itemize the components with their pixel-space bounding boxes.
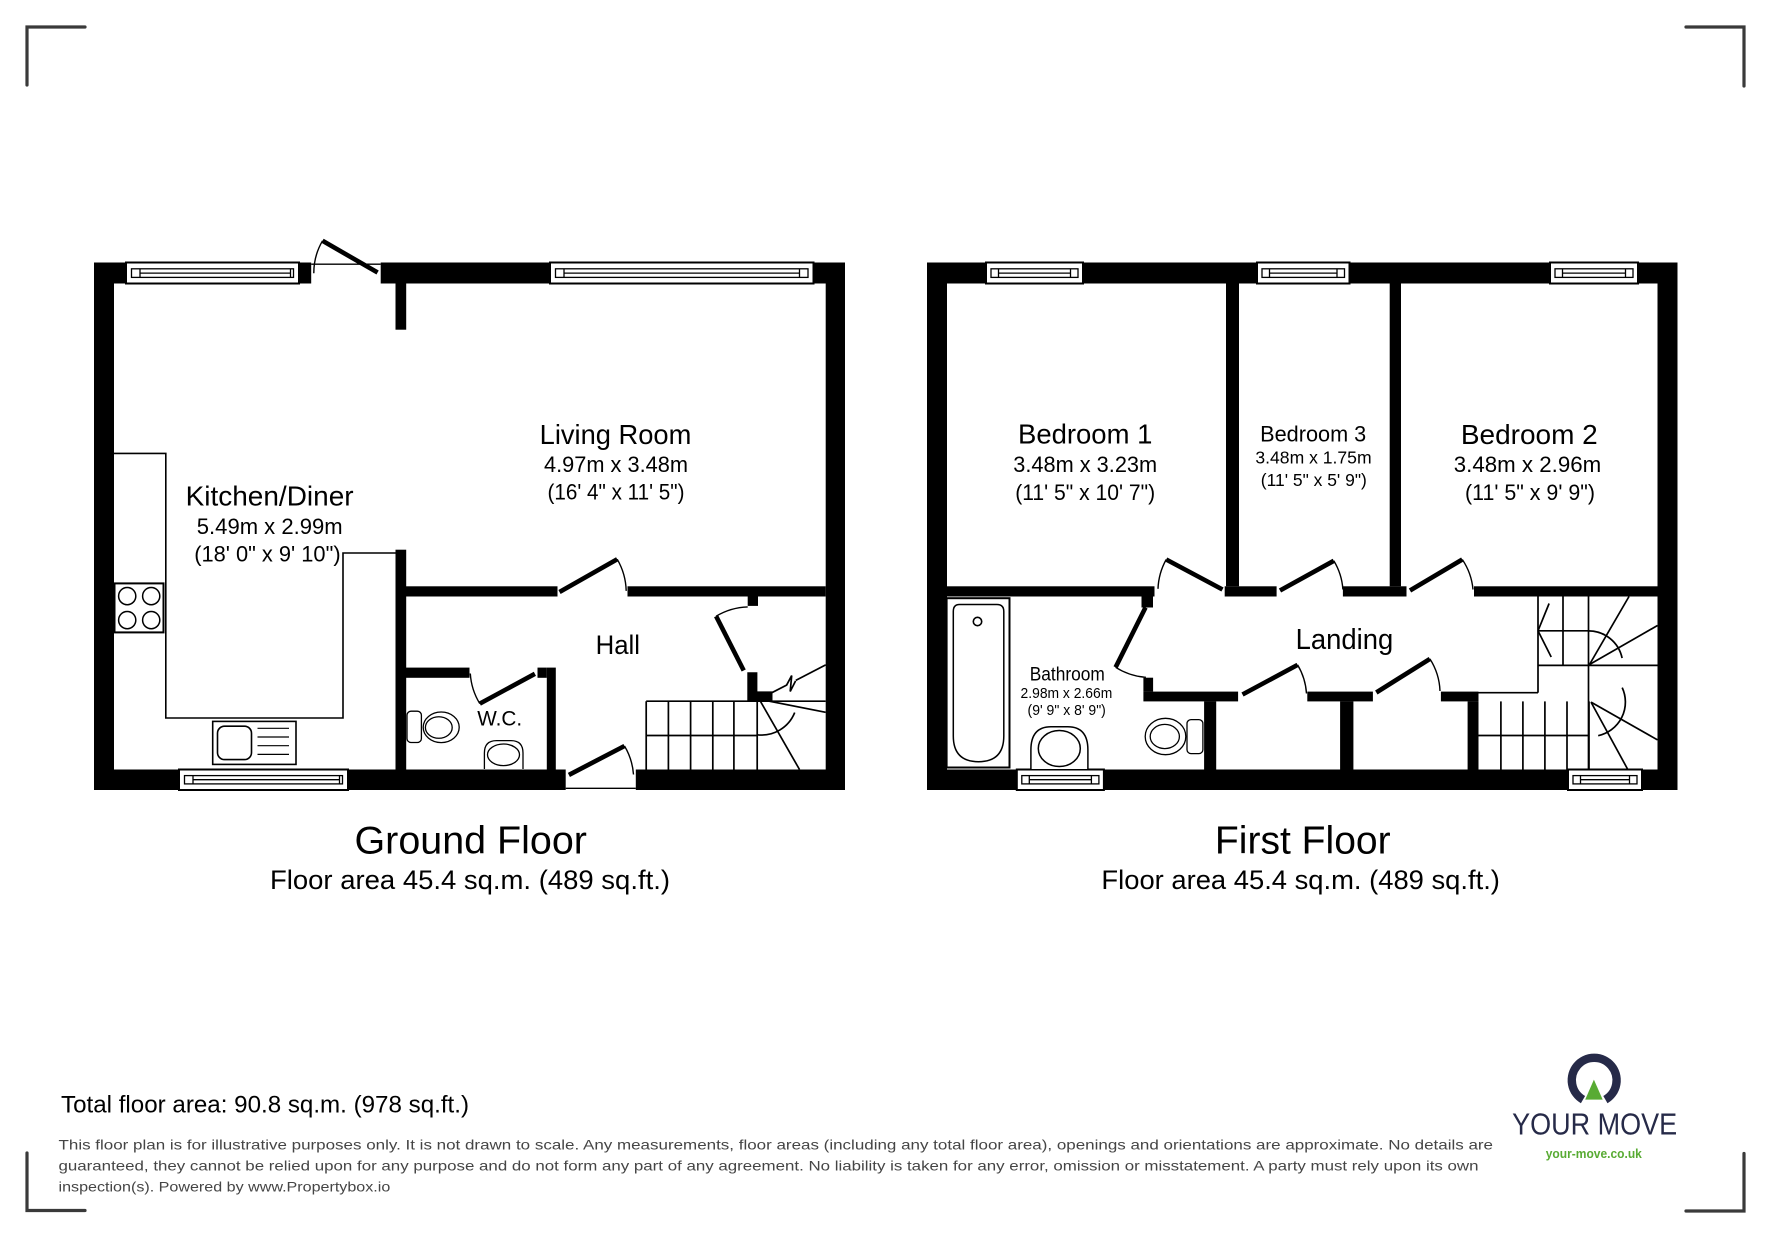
svg-text:Floor area 45.4 sq.m. (489 sq.: Floor area 45.4 sq.m. (489 sq.ft.)	[270, 865, 670, 895]
svg-text:Living Room: Living Room	[540, 419, 692, 450]
svg-text:(11' 5" x 10' 7"): (11' 5" x 10' 7")	[1015, 480, 1155, 505]
svg-text:(18' 0" x 9' 10"): (18' 0" x 9' 10")	[194, 542, 340, 567]
svg-text:(11' 5" x 5' 9"): (11' 5" x 5' 9")	[1261, 470, 1367, 490]
svg-text:Ground Floor: Ground Floor	[355, 820, 588, 863]
svg-text:Floor area 45.4 sq.m. (489 sq.: Floor area 45.4 sq.m. (489 sq.ft.)	[1101, 865, 1500, 895]
svg-text:4.97m x 3.48m: 4.97m x 3.48m	[544, 452, 688, 477]
svg-text:3.48m x 3.23m: 3.48m x 3.23m	[1013, 452, 1157, 477]
svg-text:Bedroom 2: Bedroom 2	[1461, 419, 1598, 450]
svg-text:Bedroom 1: Bedroom 1	[1018, 419, 1152, 450]
svg-text:Kitchen/Diner: Kitchen/Diner	[186, 480, 354, 511]
svg-text:(9' 9" x 8' 9"): (9' 9" x 8' 9")	[1028, 703, 1106, 719]
svg-text:Bedroom 3: Bedroom 3	[1260, 421, 1366, 446]
svg-text:First Floor: First Floor	[1215, 820, 1391, 863]
svg-text:inspection(s). Powered by www.: inspection(s). Powered by www.Propertybo…	[59, 1179, 391, 1195]
svg-text:YOUR MOVE: YOUR MOVE	[1512, 1107, 1677, 1142]
svg-text:5.49m x 2.99m: 5.49m x 2.99m	[197, 514, 343, 539]
svg-text:2.98m x 2.66m: 2.98m x 2.66m	[1021, 686, 1113, 702]
svg-text:guaranteed, they cannot be rel: guaranteed, they cannot be relied upon f…	[59, 1158, 1479, 1174]
svg-text:your-move.co.uk: your-move.co.uk	[1546, 1146, 1643, 1161]
svg-text:Hall: Hall	[596, 630, 640, 660]
svg-text:(16' 4" x 11' 5"): (16' 4" x 11' 5")	[548, 480, 685, 505]
svg-text:Bathroom: Bathroom	[1030, 665, 1105, 686]
svg-text:3.48m x 1.75m: 3.48m x 1.75m	[1255, 447, 1371, 467]
svg-text:3.48m x 2.96m: 3.48m x 2.96m	[1454, 452, 1602, 477]
svg-text:This floor plan is for illustr: This floor plan is for illustrative purp…	[59, 1136, 1494, 1152]
svg-text:Total floor area: 90.8 sq.m. (: Total floor area: 90.8 sq.m. (978 sq.ft.…	[61, 1092, 469, 1119]
svg-text:W.C.: W.C.	[477, 708, 522, 731]
svg-text:(11' 5" x 9' 9"): (11' 5" x 9' 9")	[1465, 480, 1595, 505]
svg-text:Landing: Landing	[1296, 624, 1394, 656]
